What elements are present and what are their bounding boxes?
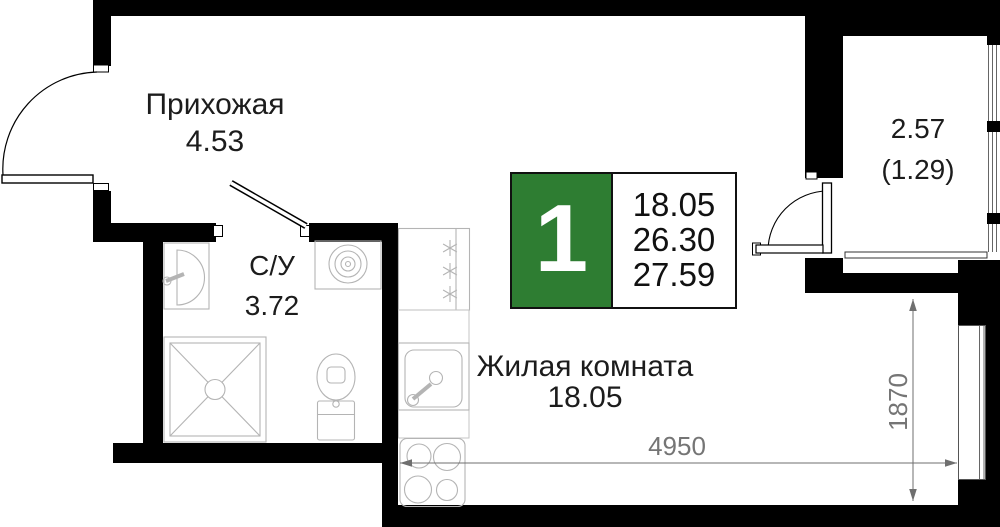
rooms-count-badge: 1 xyxy=(512,174,611,307)
floor-plan: Прихожая 4.53 С/У 3.72 Жилая комната 18.… xyxy=(0,0,1000,527)
toilet-icon xyxy=(317,354,355,440)
balcony-area: 2.57 xyxy=(843,108,993,149)
hallway-area: 4.53 xyxy=(110,123,320,160)
stove-icon xyxy=(400,439,465,507)
balcony-window-sill xyxy=(756,245,823,253)
freezer-snowflake-icon xyxy=(443,240,457,302)
balcony-door-leaf xyxy=(823,183,832,253)
balcony-parapet-sill xyxy=(845,252,987,258)
balcony-area-coefficient: (1.29) xyxy=(843,149,993,190)
area-without-summer-value: 26.30 xyxy=(613,222,735,257)
dimension-width: 4950 xyxy=(597,432,757,460)
bathroom-area: 3.72 xyxy=(197,286,347,326)
bathroom-label: С/У 3.72 xyxy=(197,246,347,326)
dimension-depth: 1870 xyxy=(884,342,912,462)
hallway-name: Прихожая xyxy=(110,86,320,123)
living-room-label: Жилая комната 18.05 xyxy=(435,351,735,413)
fridge-icon xyxy=(399,229,470,311)
bathroom-name: С/У xyxy=(197,246,347,286)
bathroom-door xyxy=(231,183,306,226)
total-area-value: 27.59 xyxy=(613,257,735,292)
floor-plan-drawing xyxy=(0,0,1000,527)
balcony-label: 2.57 (1.29) xyxy=(843,108,993,190)
living-area-value: 18.05 xyxy=(613,187,735,222)
entrance-door-arc xyxy=(3,72,97,175)
hallway-label: Прихожая 4.53 xyxy=(110,86,320,160)
balcony-door xyxy=(756,183,832,253)
living-room-window xyxy=(959,326,986,480)
entrance-door-leaf xyxy=(2,175,93,183)
living-room-name: Жилая комната xyxy=(435,351,735,382)
entrance-door xyxy=(2,72,97,183)
area-list: 18.05 26.30 27.59 xyxy=(611,174,735,307)
living-room-area: 18.05 xyxy=(435,382,735,413)
info-badge: 1 18.05 26.30 27.59 xyxy=(510,172,737,309)
shower-icon xyxy=(164,337,266,442)
balcony-door-arc xyxy=(768,191,828,251)
